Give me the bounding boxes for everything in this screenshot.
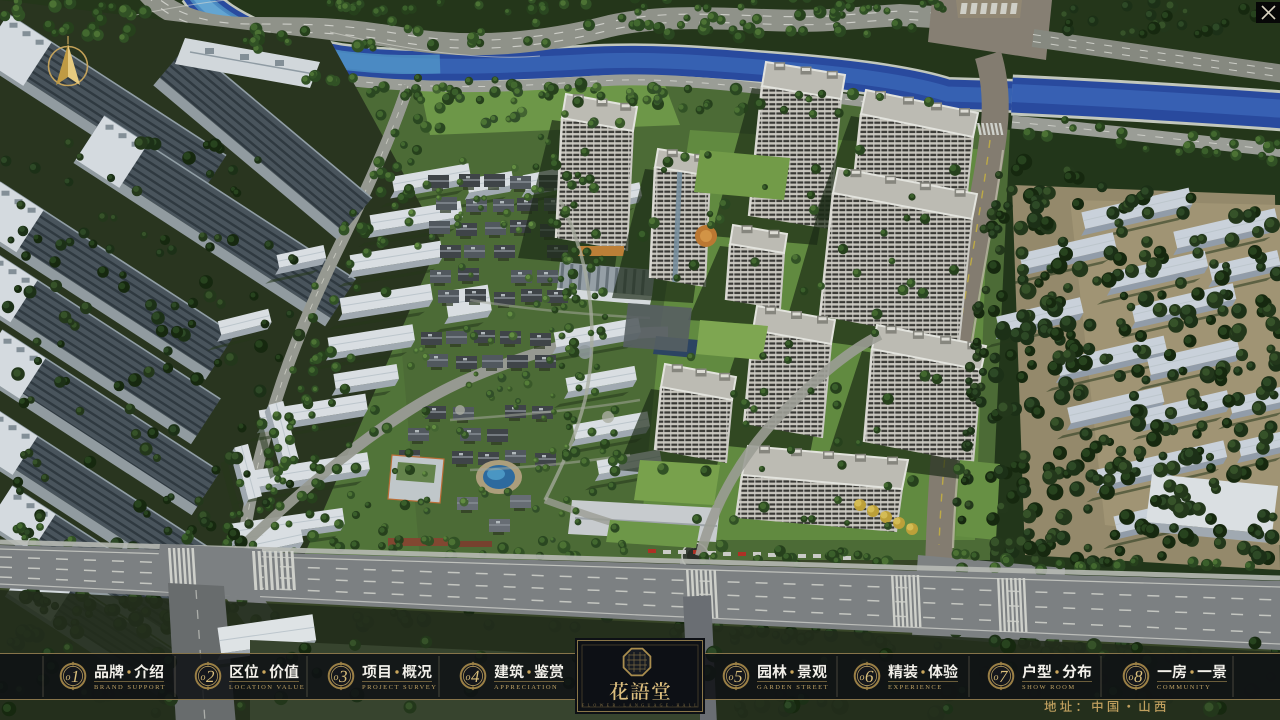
svg-text:SHOW ROOM: SHOW ROOM [1022,684,1076,691]
svg-text:LOCATION VALUE: LOCATION VALUE [229,684,305,691]
svg-text:PROJECT SURVEY: PROJECT SURVEY [362,684,437,691]
svg-text:APPRECIATION: APPRECIATION [494,684,558,691]
svg-text:GARDEN STREET: GARDEN STREET [757,684,829,691]
svg-text:EXPERIENCE: EXPERIENCE [888,684,943,691]
svg-text:BRAND SUPPORT: BRAND SUPPORT [94,684,166,691]
svg-text:F L O W E R · L A N G U A G E: F L O W E R · L A N G U A G E · H A L L [582,703,698,708]
svg-text:COMMUNITY: COMMUNITY [1157,684,1211,691]
